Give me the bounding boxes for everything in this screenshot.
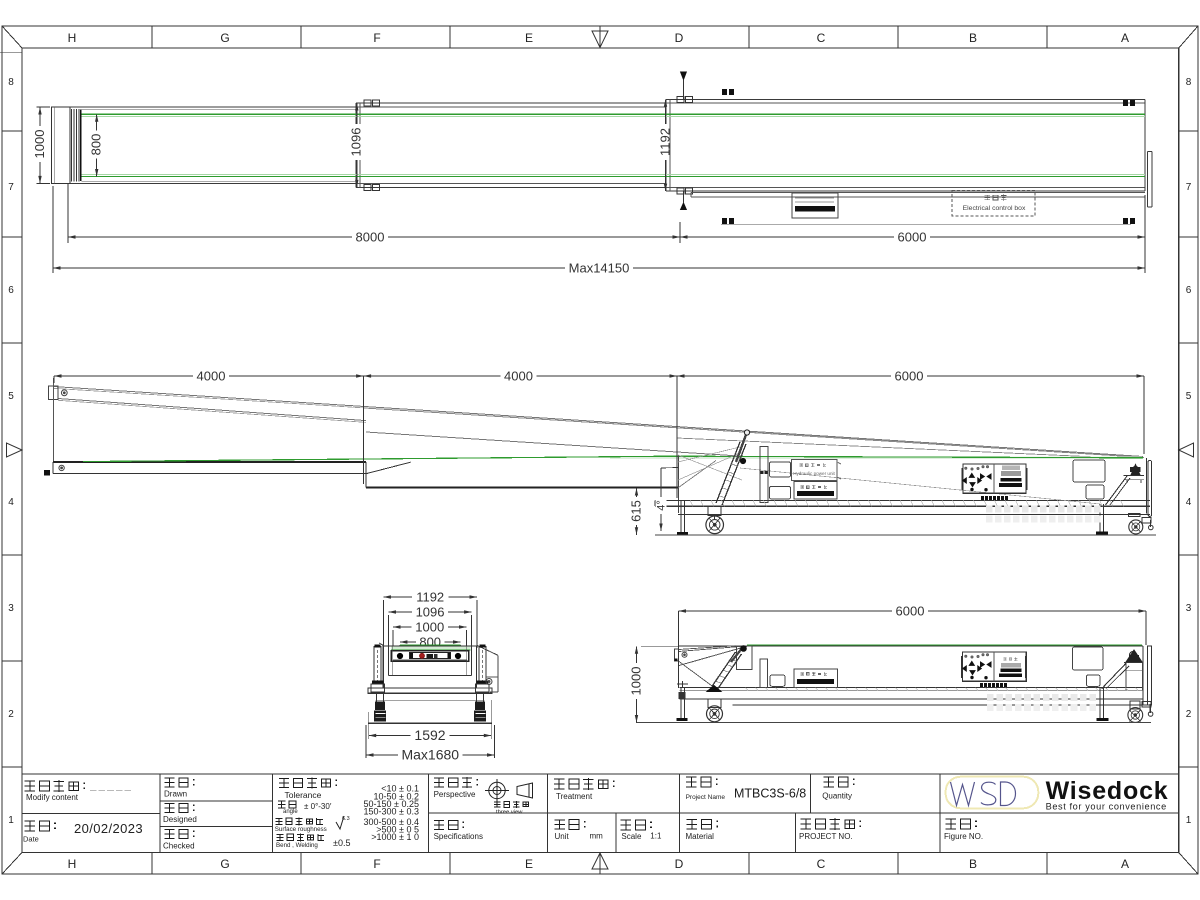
svg-text:8000: 8000 <box>356 229 385 244</box>
svg-text:D: D <box>675 31 684 45</box>
svg-text:20/02/2023: 20/02/2023 <box>74 821 143 836</box>
svg-text:1000: 1000 <box>628 667 643 696</box>
svg-text:7: 7 <box>8 182 14 193</box>
svg-text:4000: 4000 <box>197 368 226 383</box>
svg-text:G: G <box>220 31 229 45</box>
svg-text:1000: 1000 <box>415 619 444 634</box>
svg-text:6: 6 <box>1186 285 1192 296</box>
svg-text:4: 4 <box>8 497 14 508</box>
svg-text:Unit: Unit <box>555 832 570 841</box>
svg-text:2: 2 <box>1186 709 1192 720</box>
svg-text:B: B <box>969 31 977 45</box>
svg-text:1592: 1592 <box>414 727 445 743</box>
svg-text:Quantity: Quantity <box>822 792 852 801</box>
svg-text:B: B <box>969 857 977 871</box>
svg-text:Figure NO.: Figure NO. <box>944 832 983 841</box>
svg-text:1: 1 <box>8 815 14 826</box>
svg-text:angle: angle <box>283 809 298 815</box>
svg-text:150-300 ± 0.3: 150-300 ± 0.3 <box>364 807 419 817</box>
svg-text:Modify content: Modify content <box>26 793 79 802</box>
svg-text:C: C <box>817 857 826 871</box>
svg-text:A: A <box>1121 31 1129 45</box>
svg-text:±0.5: ±0.5 <box>333 838 350 848</box>
svg-text:G: G <box>220 857 229 871</box>
svg-text:6: 6 <box>8 285 14 296</box>
svg-text:6.3: 6.3 <box>342 816 350 822</box>
svg-text:4°: 4° <box>656 500 668 511</box>
svg-text:Designed: Designed <box>163 815 197 824</box>
svg-text:Max14150: Max14150 <box>569 260 630 275</box>
svg-text:6000: 6000 <box>896 603 925 618</box>
svg-text:Checked: Checked <box>163 842 195 851</box>
svg-text:4: 4 <box>1186 497 1192 508</box>
svg-text:1192: 1192 <box>657 128 672 156</box>
svg-text:C: C <box>817 31 826 45</box>
svg-text:E: E <box>525 31 533 45</box>
svg-text:8: 8 <box>8 77 14 88</box>
svg-text:± 0°-30′: ± 0°-30′ <box>304 802 332 811</box>
svg-text:Material: Material <box>686 832 715 841</box>
svg-text:H: H <box>68 31 77 45</box>
svg-text:2: 2 <box>8 709 14 720</box>
svg-text:three view: three view <box>496 810 523 816</box>
svg-text:3: 3 <box>1186 603 1192 614</box>
svg-text:Drawn: Drawn <box>164 790 187 799</box>
svg-text:H: H <box>68 857 77 871</box>
svg-text:MTBC3S-6/8: MTBC3S-6/8 <box>734 787 806 801</box>
svg-text:Tolerance: Tolerance <box>285 790 322 800</box>
svg-text:1096: 1096 <box>349 128 364 157</box>
svg-text:Max1680: Max1680 <box>401 747 459 763</box>
svg-text:5: 5 <box>8 391 14 402</box>
svg-text:Scale: Scale <box>621 832 642 841</box>
svg-text:3: 3 <box>8 603 14 614</box>
svg-text:Best for your convenience: Best for your convenience <box>1046 802 1167 812</box>
svg-text:F: F <box>373 31 380 45</box>
svg-text:8: 8 <box>1186 77 1192 88</box>
svg-text:7: 7 <box>1186 182 1192 193</box>
svg-text:D: D <box>675 857 684 871</box>
svg-text:5: 5 <box>1186 391 1192 402</box>
svg-text:615: 615 <box>628 500 643 522</box>
svg-text:Bend , Welding: Bend , Welding <box>276 842 318 849</box>
svg-text:1: 1 <box>1186 815 1192 826</box>
svg-text:Perspective: Perspective <box>434 790 476 799</box>
svg-text:E: E <box>525 857 533 871</box>
svg-text:PROJECT NO.: PROJECT NO. <box>799 832 853 841</box>
svg-text:mm: mm <box>590 832 604 841</box>
svg-text:A: A <box>1121 857 1129 871</box>
svg-text:1096: 1096 <box>416 604 445 619</box>
svg-text:Date: Date <box>23 835 39 844</box>
svg-text:1192: 1192 <box>416 589 444 604</box>
svg-text:Specifications: Specifications <box>434 832 483 841</box>
svg-text:Project Name: Project Name <box>686 794 726 801</box>
svg-text:6000: 6000 <box>895 368 924 383</box>
svg-text:Electrical control box: Electrical control box <box>963 205 1026 212</box>
svg-text:Treatment: Treatment <box>556 792 593 801</box>
svg-text:1:1: 1:1 <box>650 832 662 841</box>
svg-text:4000: 4000 <box>504 368 533 383</box>
svg-text:F: F <box>373 857 380 871</box>
svg-text:800: 800 <box>89 134 104 156</box>
svg-text:>1000 ± 1 0: >1000 ± 1 0 <box>371 832 419 842</box>
svg-text:1000: 1000 <box>32 130 47 159</box>
svg-text:Surface roughness: Surface roughness <box>275 826 327 833</box>
svg-text:6000: 6000 <box>898 229 927 244</box>
svg-text:Hydraulic power unit: Hydraulic power unit <box>793 471 835 476</box>
